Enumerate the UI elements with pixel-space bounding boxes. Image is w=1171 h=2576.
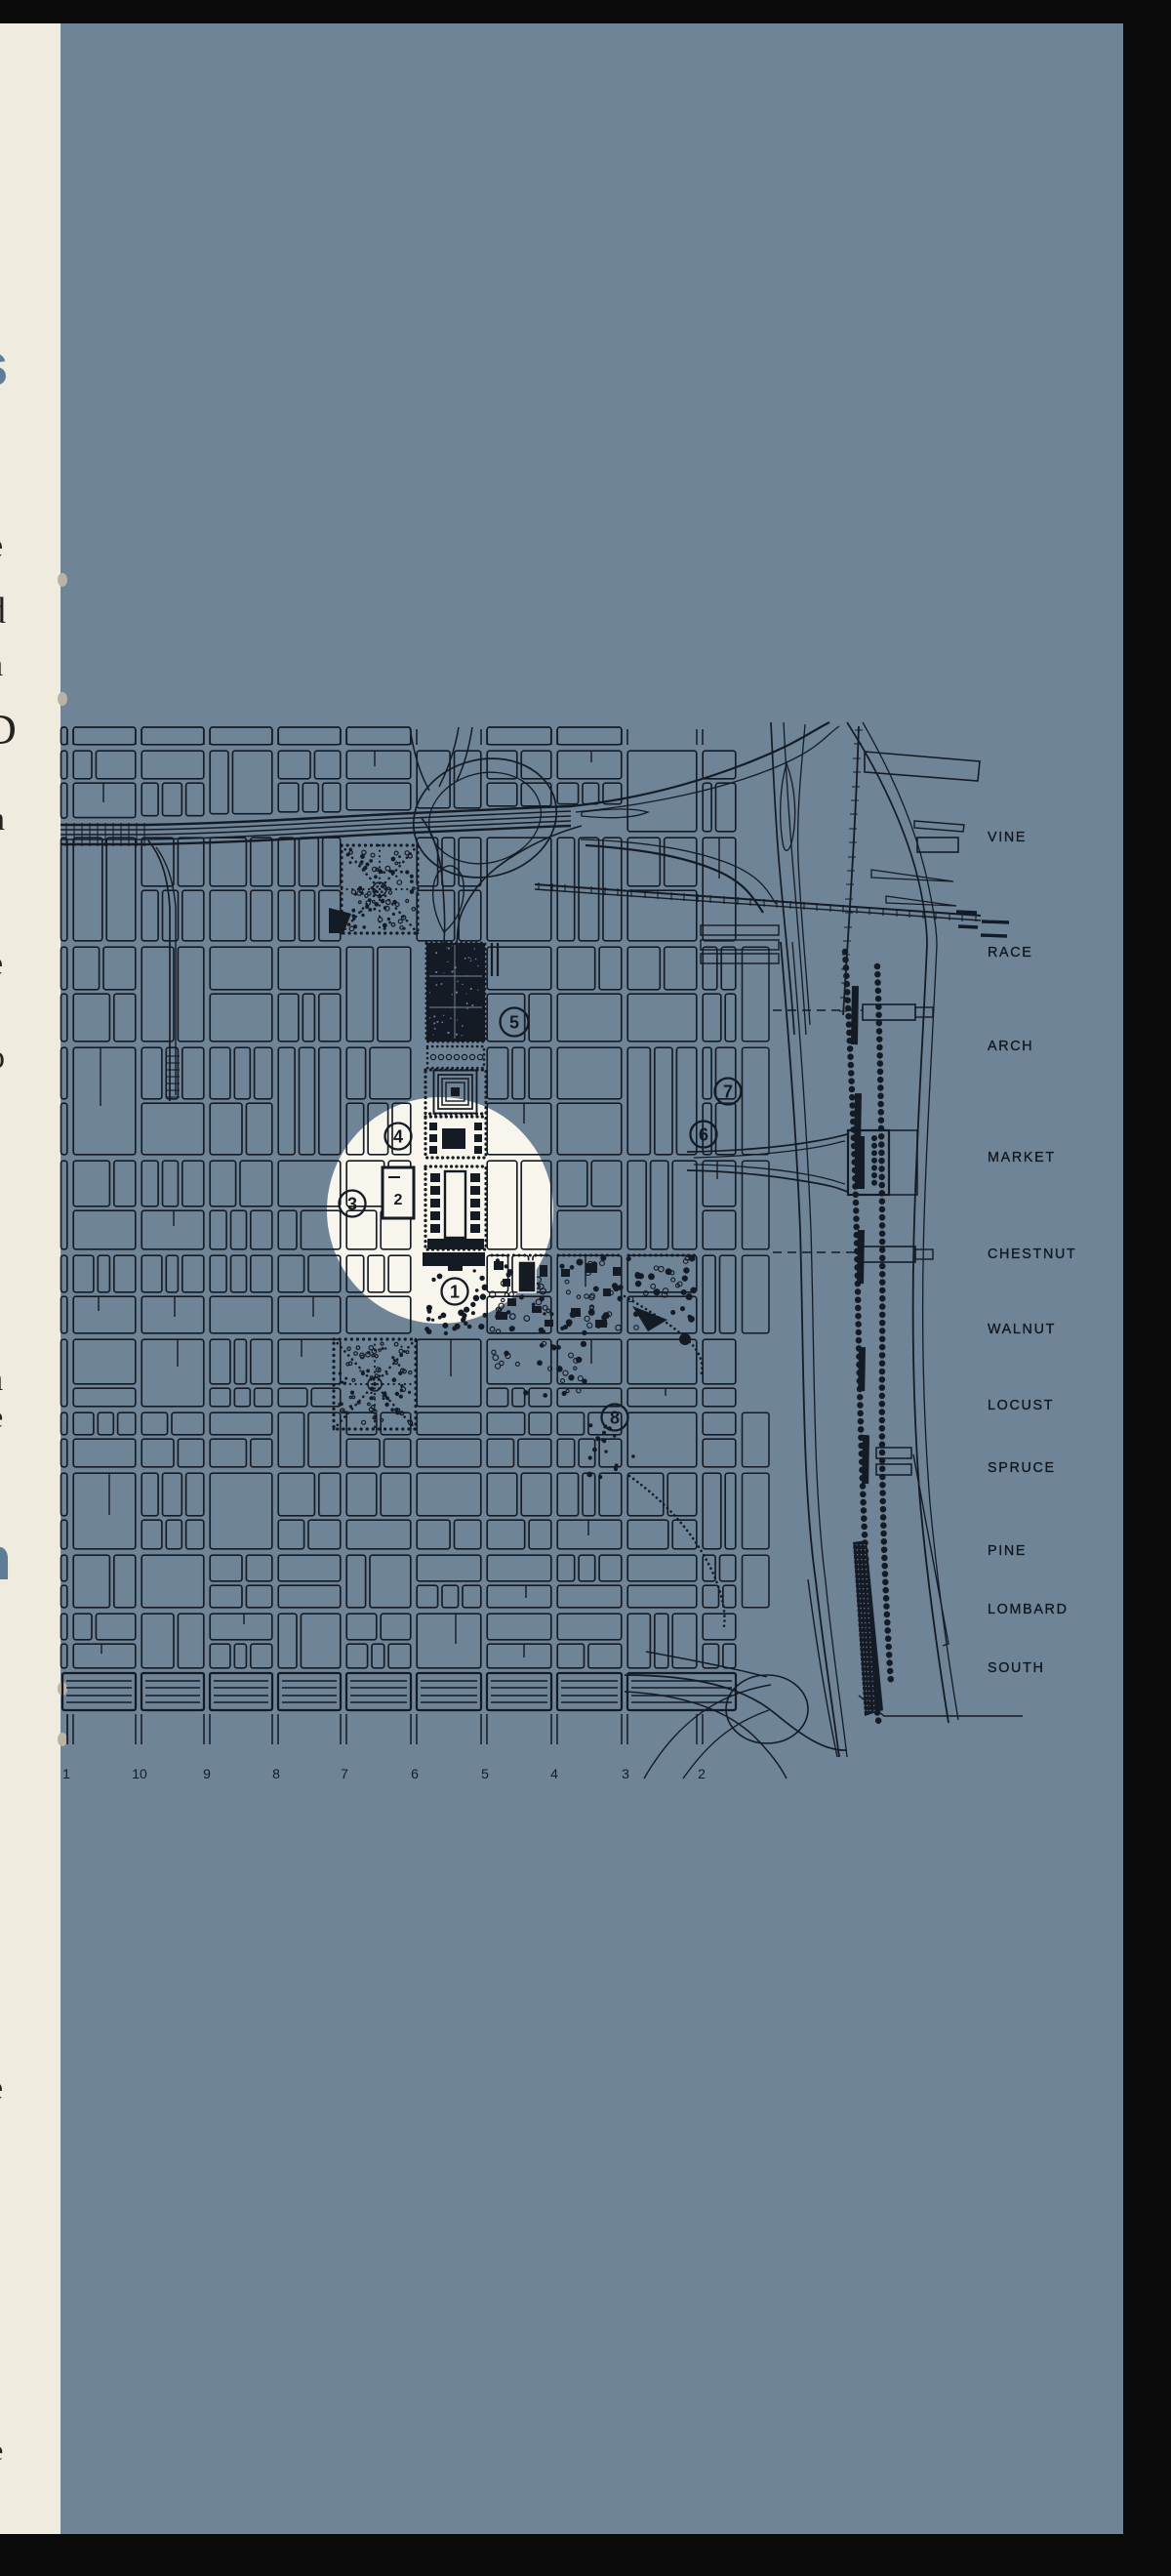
svg-text:5: 5 [509, 1013, 519, 1033]
svg-text:WALNUT: WALNUT [988, 1322, 1056, 1337]
svg-text:RACE: RACE [988, 945, 1033, 961]
svg-text:1: 1 [450, 1283, 460, 1302]
svg-text:e: e [0, 528, 3, 564]
svg-text:PINE: PINE [988, 1543, 1027, 1559]
svg-text:ARCH: ARCH [988, 1039, 1033, 1054]
svg-text:LOMBARD: LOMBARD [988, 1602, 1069, 1617]
svg-text:8: 8 [272, 1766, 280, 1781]
svg-text:o: o [0, 1040, 5, 1076]
svg-text:3: 3 [622, 1766, 629, 1781]
svg-text:e: e [0, 2070, 3, 2106]
svg-text:e: e [0, 1399, 3, 1434]
svg-text:d: d [0, 591, 6, 632]
svg-text:4: 4 [550, 1766, 558, 1781]
svg-text:2: 2 [698, 1766, 706, 1781]
svg-text:SOUTH: SOUTH [988, 1660, 1045, 1676]
svg-text:9: 9 [203, 1766, 211, 1781]
svg-text:VINE: VINE [988, 830, 1027, 845]
svg-text:s: s [0, 332, 8, 399]
svg-text:n: n [0, 801, 5, 838]
svg-text:a: a [0, 1362, 3, 1398]
svg-text:6: 6 [411, 1766, 419, 1781]
svg-text:D: D [0, 706, 17, 754]
svg-text:s: s [0, 1307, 1, 1343]
svg-text:n: n [0, 1526, 12, 1593]
svg-text:e: e [0, 946, 3, 982]
svg-text:8: 8 [610, 1409, 620, 1428]
svg-text:SPRUCE: SPRUCE [988, 1460, 1056, 1476]
svg-text:5: 5 [481, 1766, 489, 1781]
svg-text:1: 1 [62, 1766, 70, 1781]
svg-text:10: 10 [132, 1766, 147, 1781]
svg-text:2: 2 [394, 1192, 403, 1208]
svg-text:s: s [0, 899, 1, 935]
svg-text:7: 7 [341, 1766, 348, 1781]
svg-text:CHESTNUT: CHESTNUT [988, 1247, 1076, 1262]
svg-text:a: a [0, 647, 3, 683]
svg-text:7: 7 [723, 1083, 733, 1102]
svg-text:e: e [0, 2434, 3, 2467]
svg-text:3: 3 [347, 1195, 357, 1214]
svg-text:LOCUST: LOCUST [988, 1398, 1054, 1413]
svg-text:6: 6 [699, 1125, 708, 1145]
svg-text:MARKET: MARKET [988, 1150, 1056, 1165]
svg-text:4: 4 [393, 1127, 403, 1147]
